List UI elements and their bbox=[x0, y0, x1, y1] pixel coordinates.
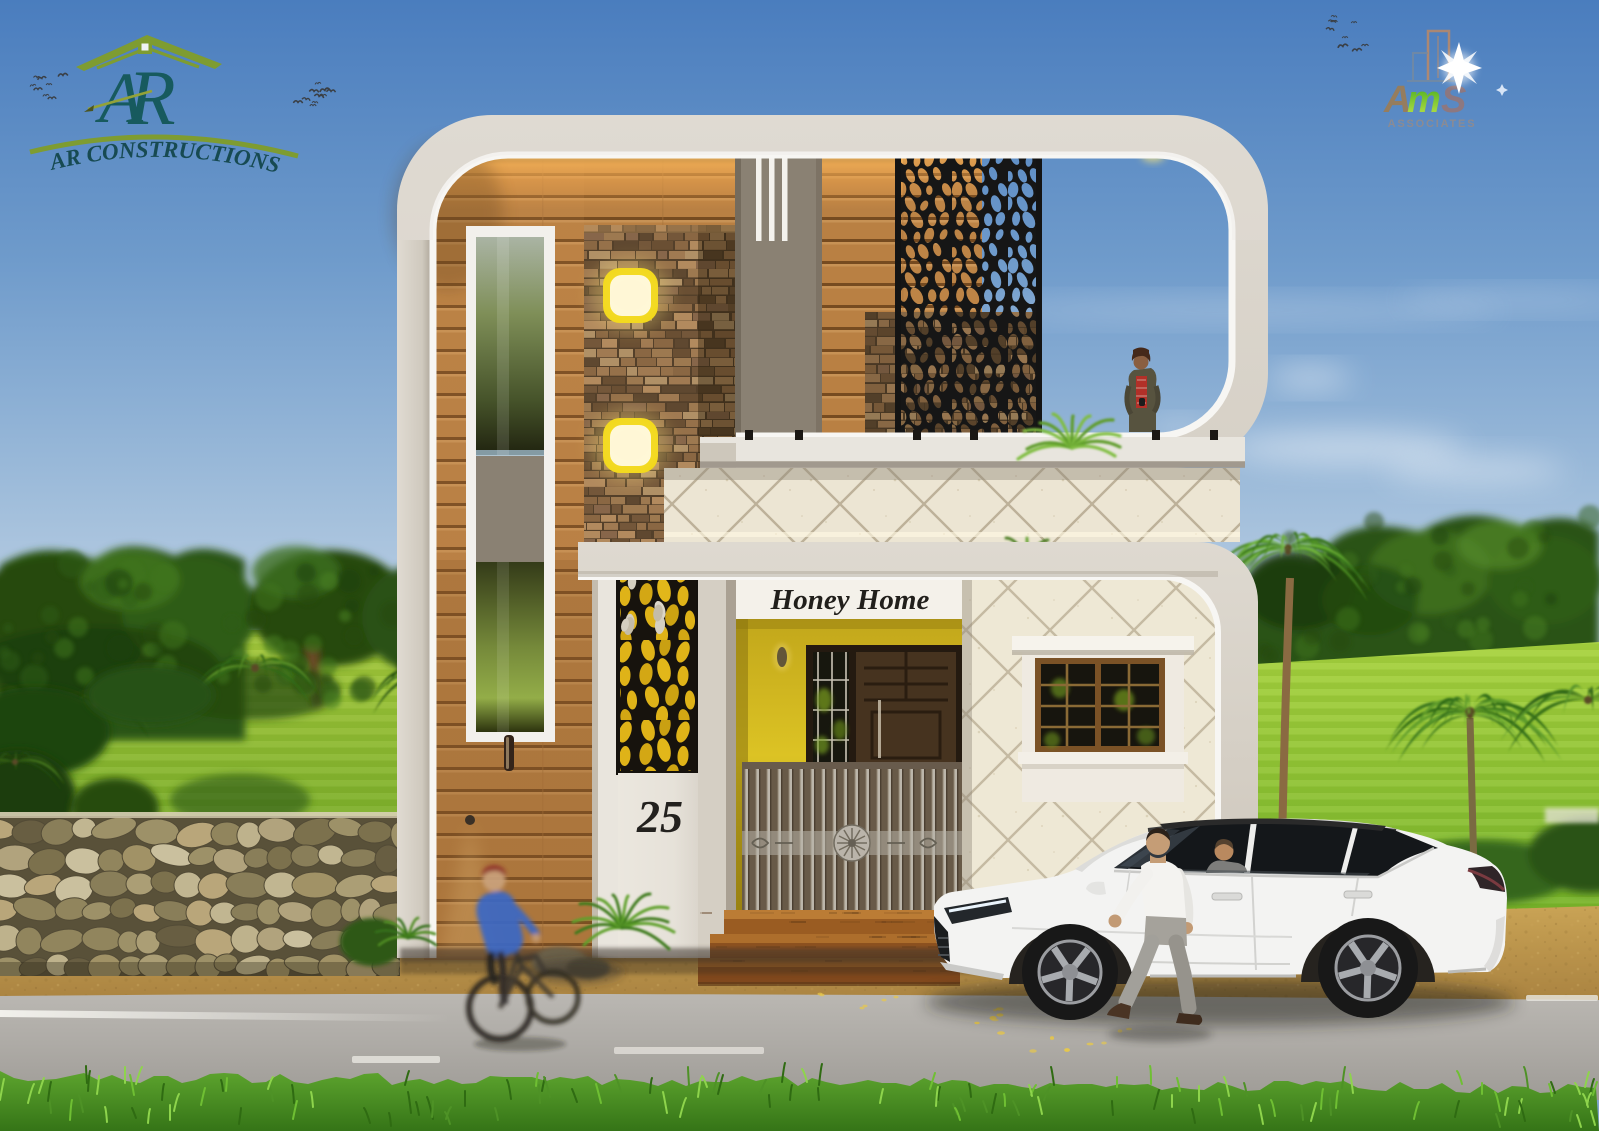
svg-text:Honey Home: Honey Home bbox=[770, 584, 930, 616]
svg-text:ASSOCIATES: ASSOCIATES bbox=[1388, 118, 1477, 130]
svg-text:m: m bbox=[1407, 79, 1441, 121]
svg-text:R: R bbox=[127, 54, 176, 141]
svg-text:S: S bbox=[1441, 79, 1466, 121]
svg-text:25: 25 bbox=[636, 791, 683, 842]
